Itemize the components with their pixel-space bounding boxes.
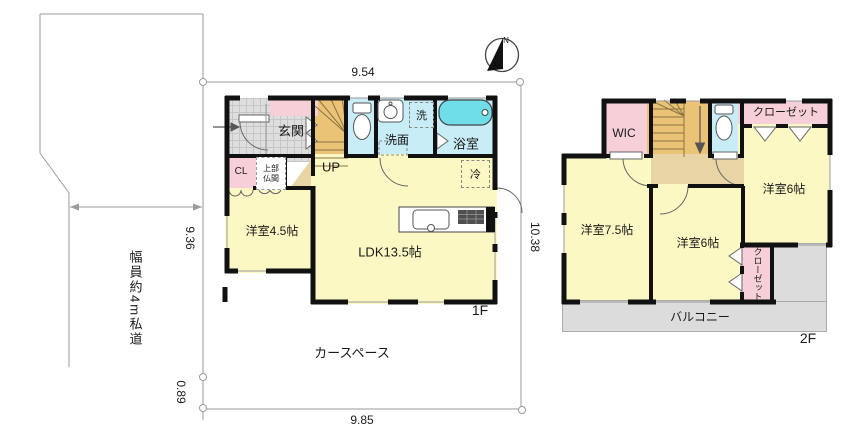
ldk-label: LDK13.5帖 <box>358 246 422 259</box>
butsuma-label: 上部仏間 <box>262 164 280 183</box>
dim-top: 9.54 <box>351 66 374 78</box>
washer-box: 洗 <box>409 102 434 128</box>
dim-left-lower: 0.89 <box>175 380 187 403</box>
genkan-label: 玄関 <box>278 125 304 138</box>
road-label: 幅員約4m私道 <box>129 250 142 347</box>
butsuma-box: 上部仏間 <box>256 157 286 190</box>
floorplan-canvas: 冷 洗 上部仏間 玄関 UP 洗面 浴室 CL 洋室4.5帖 LDK13.5帖 … <box>0 0 848 436</box>
toilet-room-2f <box>708 101 742 158</box>
stairs-up-label: UP <box>322 161 340 174</box>
balcony-right <box>772 243 827 302</box>
entrance-porch <box>225 98 270 162</box>
car-space-label: カースペース <box>314 347 390 360</box>
stairs-2f <box>647 101 712 158</box>
closet-side-label: クローゼット <box>753 247 762 301</box>
bedroom-6-mid-label: 洋室6帖 <box>677 237 720 249</box>
closet-cl-label: CL <box>235 167 248 177</box>
hall-2f <box>647 154 744 188</box>
balcony-label: バルコニー <box>670 311 730 323</box>
dim-bottom: 9.85 <box>350 414 373 426</box>
floor1-label: 1F <box>472 303 488 317</box>
compass-icon <box>486 38 519 72</box>
fridge-box: 冷 <box>461 160 490 188</box>
road-width-arrows <box>70 204 202 211</box>
washer-label: 洗 <box>416 107 427 123</box>
compass-north-label: N <box>503 37 509 45</box>
bedroom-75-label: 洋室7.5帖 <box>581 224 634 236</box>
fridge-label: 冷 <box>470 166 481 182</box>
washroom-label: 洗面 <box>385 134 409 146</box>
dim-right: 10.38 <box>529 222 541 252</box>
wic-label: WIC <box>612 127 635 139</box>
bathroom-label: 浴室 <box>453 138 479 151</box>
floor2-label: 2F <box>800 331 816 345</box>
bedroom-45-label: 洋室4.5帖 <box>246 225 299 237</box>
shoe-cabinet <box>270 100 318 116</box>
bedroom-6-right-label: 洋室6帖 <box>763 183 806 195</box>
dim-left: 9.36 <box>184 226 196 249</box>
closet-top-label: クローゼット <box>753 108 819 119</box>
